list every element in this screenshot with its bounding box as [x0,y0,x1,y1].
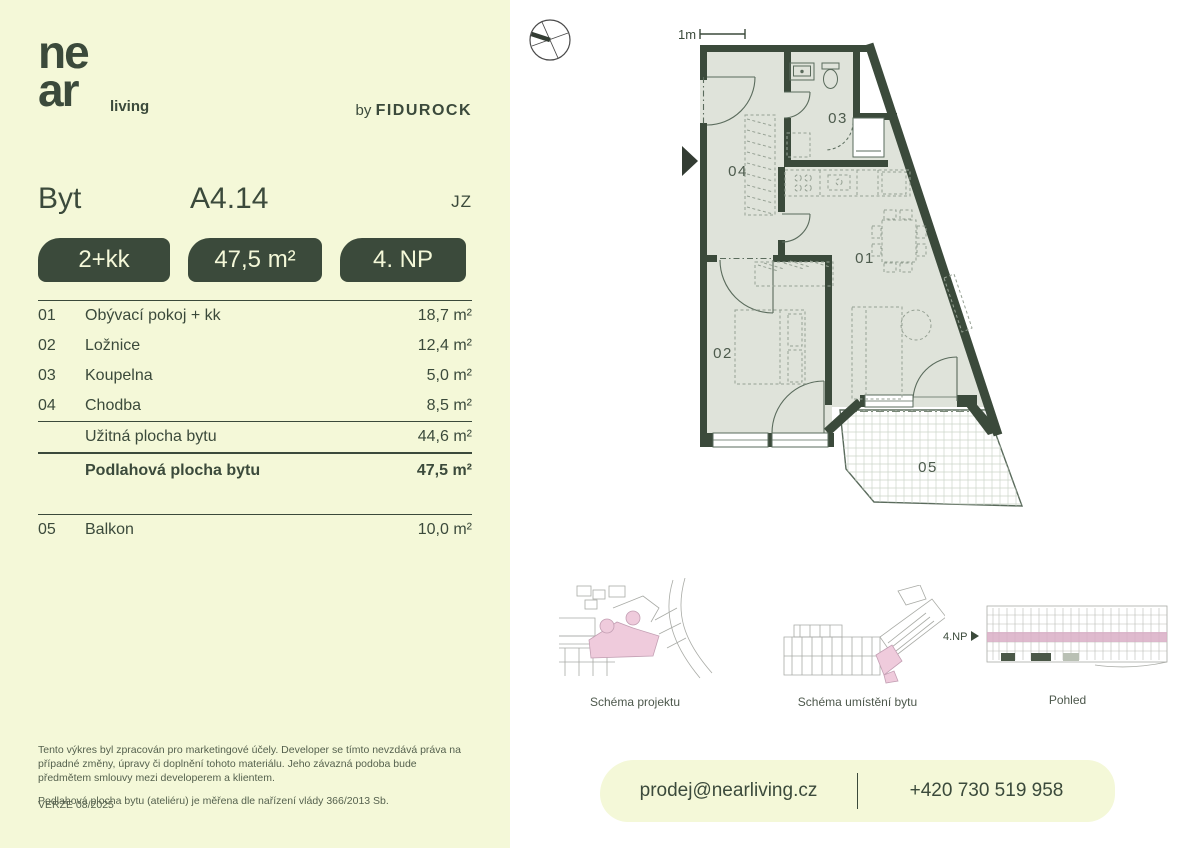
compass-icon [525,15,575,65]
room-area: 12,4 m² [418,337,472,355]
room-label-01: 01 [855,250,875,267]
table-row: 04 Chodba 8,5 m² [38,391,472,421]
apartment-floor [700,45,991,447]
room-area: 18,7 m² [418,307,472,325]
left-panel: ne ar living by FIDUROCK Byt A4.14 JZ 2+… [0,0,510,848]
unit-id: A4.14 [190,182,268,216]
summary-area: 47,5 m² [417,462,472,480]
scale-label: 1m [678,27,696,42]
room-label-05: 05 [918,459,938,476]
summary-area: 44,6 m² [418,428,472,446]
orientation-label: JZ [451,192,472,212]
floor-area-row: Podlahová plocha bytu 47,5 m² [38,454,472,488]
room-area: 8,5 m² [427,397,472,415]
flyer-page: ne ar living by FIDUROCK Byt A4.14 JZ 2+… [0,0,1200,848]
schematic-3-caption: Pohled [985,693,1150,707]
room-number: 03 [38,367,85,385]
byline-prefix: by [356,102,372,119]
room-name: Balkon [85,521,418,539]
area-badge: 47,5 m² [188,238,322,282]
near-living-logo: ne ar [38,34,88,109]
table-row: 02 Ložnice 12,4 m² [38,331,472,361]
contact-bar: prodej@nearliving.cz +420 730 519 958 [600,760,1115,822]
version-label: VERZE 08/2025 [38,799,114,811]
entrance-arrow-icon [682,146,698,176]
room-name: Chodba [85,397,427,415]
room-label-03: 03 [828,110,848,127]
disclaimer-paragraph-1: Tento výkres byl zpracován pro marketing… [38,744,472,786]
contact-phone[interactable]: +420 730 519 958 [858,780,1115,802]
room-area: 5,0 m² [427,367,472,385]
floor-badge: 4. NP [340,238,466,282]
floor-plan: 1m [660,20,1040,540]
schematic-1-caption: Schéma projektu [555,695,715,709]
room-number: 05 [38,521,85,539]
room-number: 01 [38,307,85,325]
room-name: Ložnice [85,337,418,355]
contact-email[interactable]: prodej@nearliving.cz [600,780,857,802]
table-row: 03 Koupelna 5,0 m² [38,361,472,391]
elevation-floor-label: 4.NP [943,631,967,643]
room-table: 01 Obývací pokoj + kk 18,7 m² 02 Ložnice… [38,300,472,545]
schematic-2-caption: Schéma umístění bytu [775,695,940,709]
room-name: Koupelna [85,367,427,385]
highlighted-floor-stripe [987,632,1167,642]
table-row: 01 Obývací pokoj + kk 18,7 m² [38,301,472,331]
badge-row: 2+kk 47,5 m² 4. NP [38,238,466,282]
room-area: 10,0 m² [418,521,472,539]
balcony-row: 05 Balkon 10,0 m² [38,515,472,545]
summary-name: Užitná plocha bytu [85,428,418,446]
floor-pointer-icon [971,631,979,641]
room-label-04: 04 [728,163,748,180]
unit-type-label: Byt [38,182,81,216]
fidurock-byline: by FIDUROCK [356,102,472,120]
room-number: 04 [38,397,85,415]
room-name: Obývací pokoj + kk [85,307,418,325]
project-schematic [555,578,715,690]
byline-brand: FIDUROCK [376,102,472,119]
layout-badge: 2+kk [38,238,170,282]
room-label-02: 02 [713,345,733,362]
elevation-schematic: 4.NP [935,598,1173,678]
logo-suffix: living [110,98,149,115]
room-number: 02 [38,337,85,355]
unit-location-schematic [780,585,945,685]
usable-area-row: Užitná plocha bytu 44,6 m² [38,422,472,452]
summary-name: Podlahová plocha bytu [85,462,417,480]
